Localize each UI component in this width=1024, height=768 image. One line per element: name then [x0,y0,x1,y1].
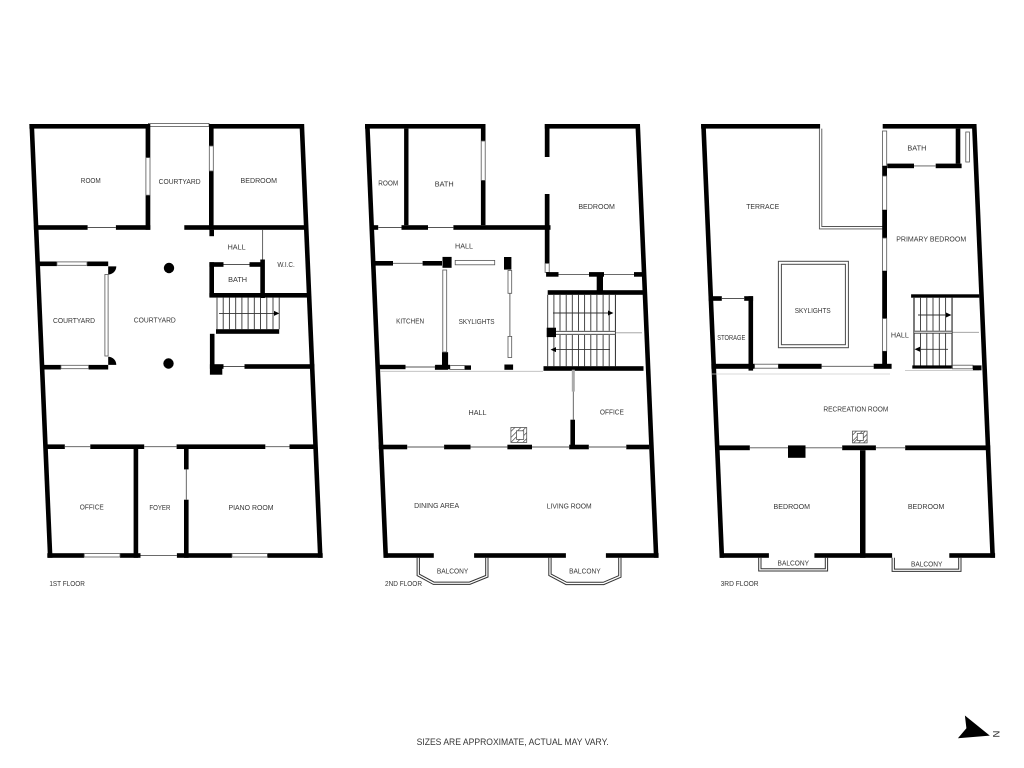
svg-text:OFFICE: OFFICE [600,408,624,417]
svg-text:PIANO ROOM: PIANO ROOM [229,503,274,512]
svg-text:BALCONY: BALCONY [569,568,601,575]
svg-text:SKYLIGHTS: SKYLIGHTS [459,317,495,326]
svg-text:BATH: BATH [228,275,247,284]
svg-text:BEDROOM: BEDROOM [578,202,615,211]
svg-text:HALL: HALL [891,331,909,340]
svg-text:ROOM: ROOM [378,178,398,187]
svg-text:OFFICE: OFFICE [80,502,104,511]
svg-text:BALCONY: BALCONY [911,561,943,568]
svg-text:BEDROOM: BEDROOM [774,502,811,511]
svg-text:1ST FLOOR: 1ST FLOOR [49,579,85,588]
svg-text:BEDROOM: BEDROOM [908,502,945,511]
svg-text:3RD FLOOR: 3RD FLOOR [721,579,760,588]
svg-text:2ND FLOOR: 2ND FLOOR [385,579,422,588]
svg-text:N: N [990,731,1001,738]
svg-text:HALL: HALL [469,408,487,417]
svg-text:COURTYARD: COURTYARD [134,316,177,325]
svg-text:STORAGE: STORAGE [717,333,745,342]
svg-text:BEDROOM: BEDROOM [241,176,278,185]
svg-text:KITCHEN: KITCHEN [396,317,424,326]
svg-text:COURTYARD: COURTYARD [53,316,96,325]
svg-text:SIZES ARE APPROXIMATE, ACTUAL: SIZES ARE APPROXIMATE, ACTUAL MAY VARY. [417,737,609,747]
svg-text:PRIMARY BEDROOM: PRIMARY BEDROOM [896,235,966,244]
svg-text:ROOM: ROOM [81,176,101,185]
svg-text:W.I.C.: W.I.C. [277,260,295,269]
svg-text:BATH: BATH [435,179,454,188]
svg-text:LIVING ROOM: LIVING ROOM [547,502,592,511]
svg-text:TERRACE: TERRACE [746,202,779,211]
svg-text:RECREATION ROOM: RECREATION ROOM [823,405,888,414]
svg-text:HALL: HALL [455,241,473,250]
svg-text:SKYLIGHTS: SKYLIGHTS [795,306,831,315]
svg-text:BATH: BATH [907,144,926,153]
svg-text:DINING AREA: DINING AREA [414,501,459,510]
svg-text:BALCONY: BALCONY [437,569,469,576]
svg-text:COURTYARD: COURTYARD [159,177,202,186]
svg-text:HALL: HALL [228,243,246,252]
svg-text:BALCONY: BALCONY [778,561,810,568]
svg-text:FOYER: FOYER [149,503,170,512]
